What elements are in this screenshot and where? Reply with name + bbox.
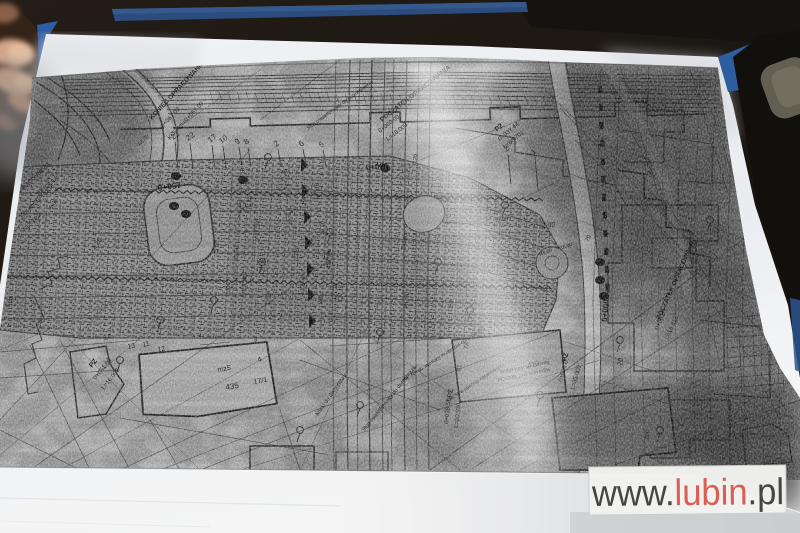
svg-text:www.lubin.pl: www.lubin.pl: [591, 471, 784, 514]
